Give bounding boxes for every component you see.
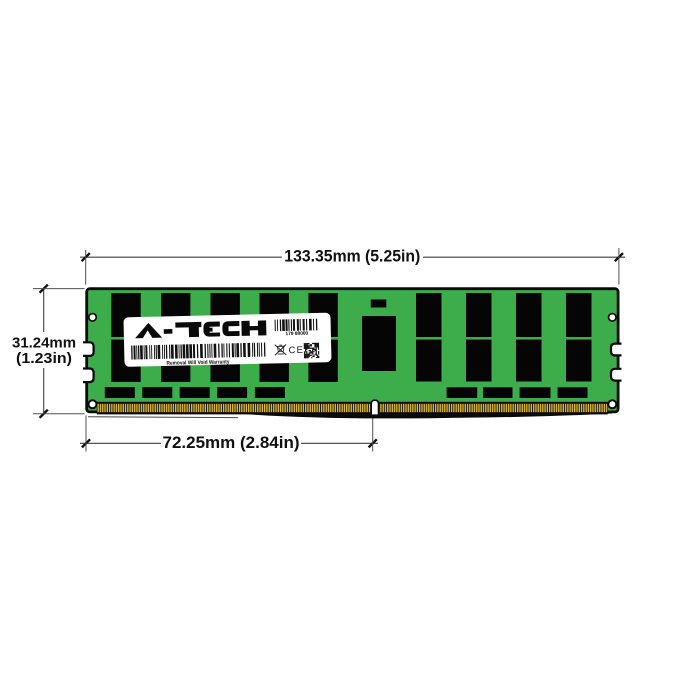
svg-text:133.35mm (5.25in): 133.35mm (5.25in) (284, 247, 420, 265)
svg-text:CE: CE (288, 345, 304, 356)
svg-text:(1.23in): (1.23in) (16, 350, 72, 367)
svg-text:179 88000: 179 88000 (285, 331, 308, 338)
svg-text:72.25mm (2.84in): 72.25mm (2.84in) (163, 434, 300, 452)
